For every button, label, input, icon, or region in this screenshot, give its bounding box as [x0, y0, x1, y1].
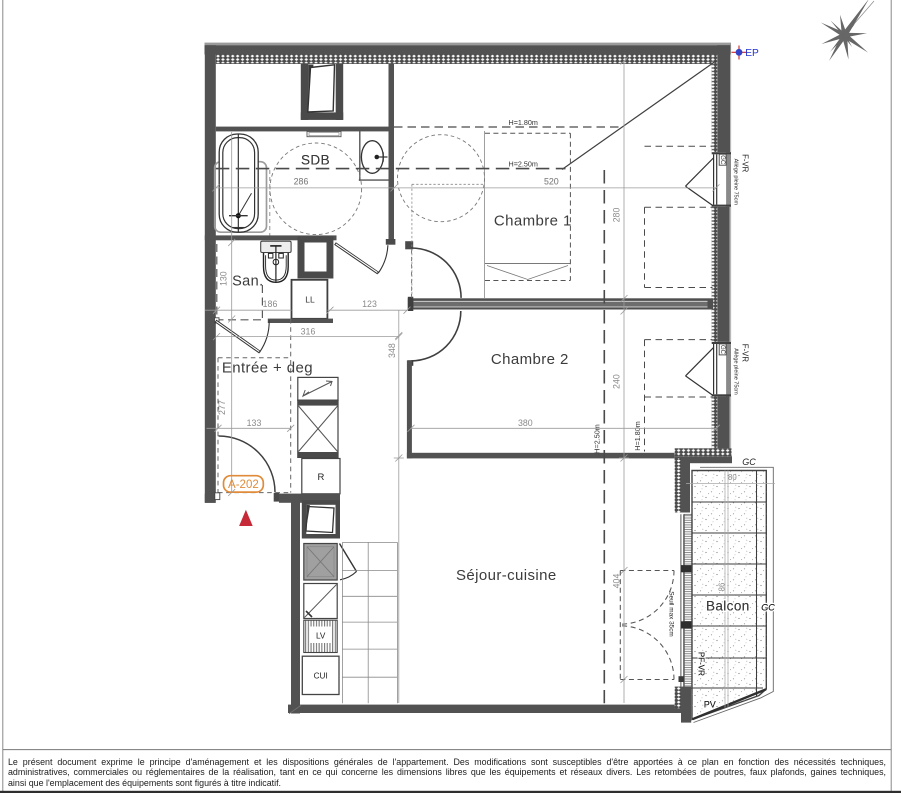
svg-text:Chambre 1: Chambre 1	[494, 212, 572, 229]
svg-text:San.: San.	[232, 273, 263, 289]
svg-text:280: 280	[611, 208, 621, 223]
svg-text:PF-VR: PF-VR	[697, 652, 706, 676]
svg-text:GC: GC	[719, 155, 725, 165]
svg-text:520: 520	[544, 177, 559, 187]
svg-text:80: 80	[728, 473, 737, 482]
svg-text:GC: GC	[719, 345, 725, 355]
svg-text:348: 348	[387, 343, 397, 358]
svg-text:H=2.50m: H=2.50m	[593, 424, 602, 453]
svg-text:277: 277	[217, 400, 227, 415]
svg-text:Allège pleine 75cm: Allège pleine 75cm	[733, 159, 739, 206]
svg-text:123: 123	[362, 299, 377, 309]
svg-text:130: 130	[218, 271, 228, 286]
svg-text:LV: LV	[316, 632, 326, 641]
svg-text:286: 286	[294, 177, 309, 187]
svg-text:F-VR: F-VR	[740, 154, 749, 173]
svg-text:316: 316	[301, 326, 316, 336]
svg-text:EP: EP	[745, 48, 759, 59]
svg-text:R: R	[317, 472, 324, 483]
svg-text:Entrée + deg: Entrée + deg	[222, 359, 313, 376]
svg-text:Chambre 2: Chambre 2	[491, 351, 569, 368]
svg-text:H=1.80m: H=1.80m	[509, 118, 538, 127]
svg-text:133: 133	[247, 418, 262, 428]
svg-text:Seuil max 35cm: Seuil max 35cm	[668, 591, 675, 636]
svg-text:380: 380	[518, 418, 533, 428]
svg-text:86: 86	[717, 583, 726, 592]
svg-text:PV: PV	[704, 700, 716, 710]
svg-text:H=2.50m: H=2.50m	[509, 159, 538, 168]
svg-text:Allège pleine 75cm: Allège pleine 75cm	[733, 348, 739, 395]
svg-text:GC: GC	[761, 603, 775, 613]
svg-text:SDB: SDB	[301, 153, 330, 168]
svg-text:F-VR: F-VR	[740, 344, 749, 363]
svg-text:Balcon: Balcon	[706, 599, 750, 614]
svg-text:CUI: CUI	[314, 671, 328, 680]
svg-text:Séjour-cuisine: Séjour-cuisine	[456, 567, 557, 584]
svg-text:GC: GC	[742, 457, 756, 467]
svg-text:H=1.80m: H=1.80m	[633, 421, 642, 450]
svg-text:404: 404	[611, 574, 621, 589]
svg-text:A-202: A-202	[228, 479, 259, 491]
svg-text:186: 186	[263, 299, 278, 309]
svg-text:240: 240	[611, 374, 621, 389]
svg-text:LL: LL	[305, 295, 315, 305]
